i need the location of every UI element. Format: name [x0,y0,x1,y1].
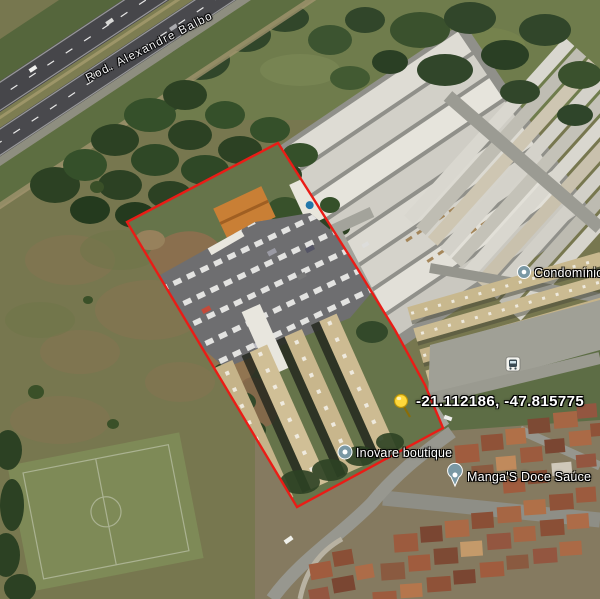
satellite-map-view[interactable]: Rod. Alexandre Balbo -21.112186, -47.815… [0,0,600,599]
satellite-imagery [0,0,600,599]
bus-stop-icon[interactable] [506,357,520,371]
poi-marker-condominio[interactable] [518,266,531,279]
poi-marker-inovare[interactable] [338,445,352,459]
